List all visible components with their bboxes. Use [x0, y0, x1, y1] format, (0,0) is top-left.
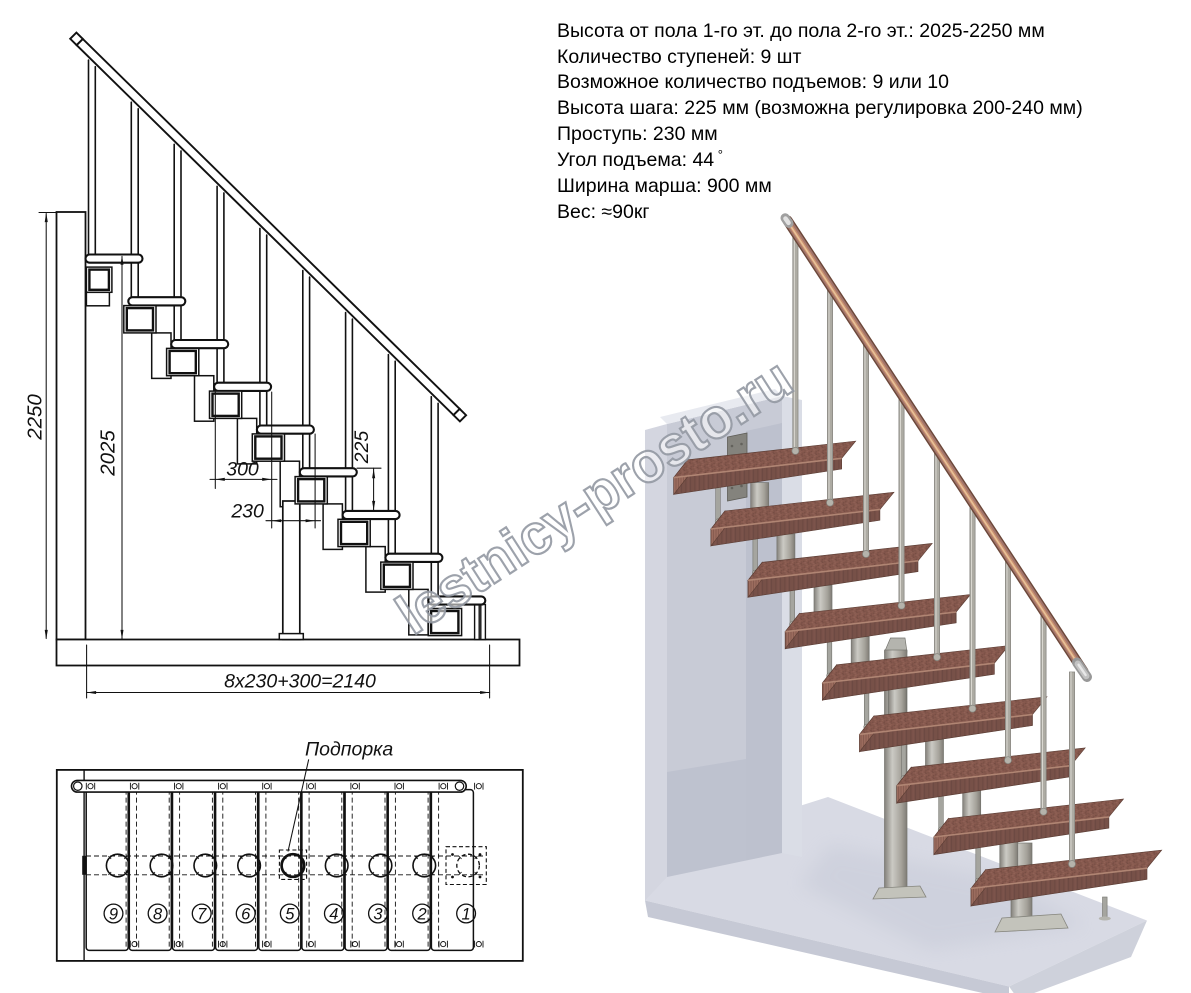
svg-text:2250: 2250 [24, 394, 47, 441]
svg-text:5: 5 [285, 906, 295, 924]
svg-text:4: 4 [329, 906, 338, 924]
svg-text:230: 230 [230, 501, 264, 523]
svg-text:6: 6 [241, 906, 251, 924]
svg-text:300: 300 [226, 459, 259, 481]
svg-text:9: 9 [109, 906, 118, 924]
svg-text:Подпорка: Подпорка [305, 739, 393, 761]
svg-text:8x230+300=2140: 8x230+300=2140 [224, 671, 376, 693]
svg-text:2025: 2025 [97, 430, 120, 477]
svg-text:7: 7 [197, 906, 207, 924]
svg-text:8: 8 [153, 906, 163, 924]
svg-text:1: 1 [462, 906, 471, 924]
svg-text:225: 225 [351, 431, 373, 465]
svg-text:2: 2 [417, 906, 427, 924]
svg-text:3: 3 [373, 906, 383, 924]
